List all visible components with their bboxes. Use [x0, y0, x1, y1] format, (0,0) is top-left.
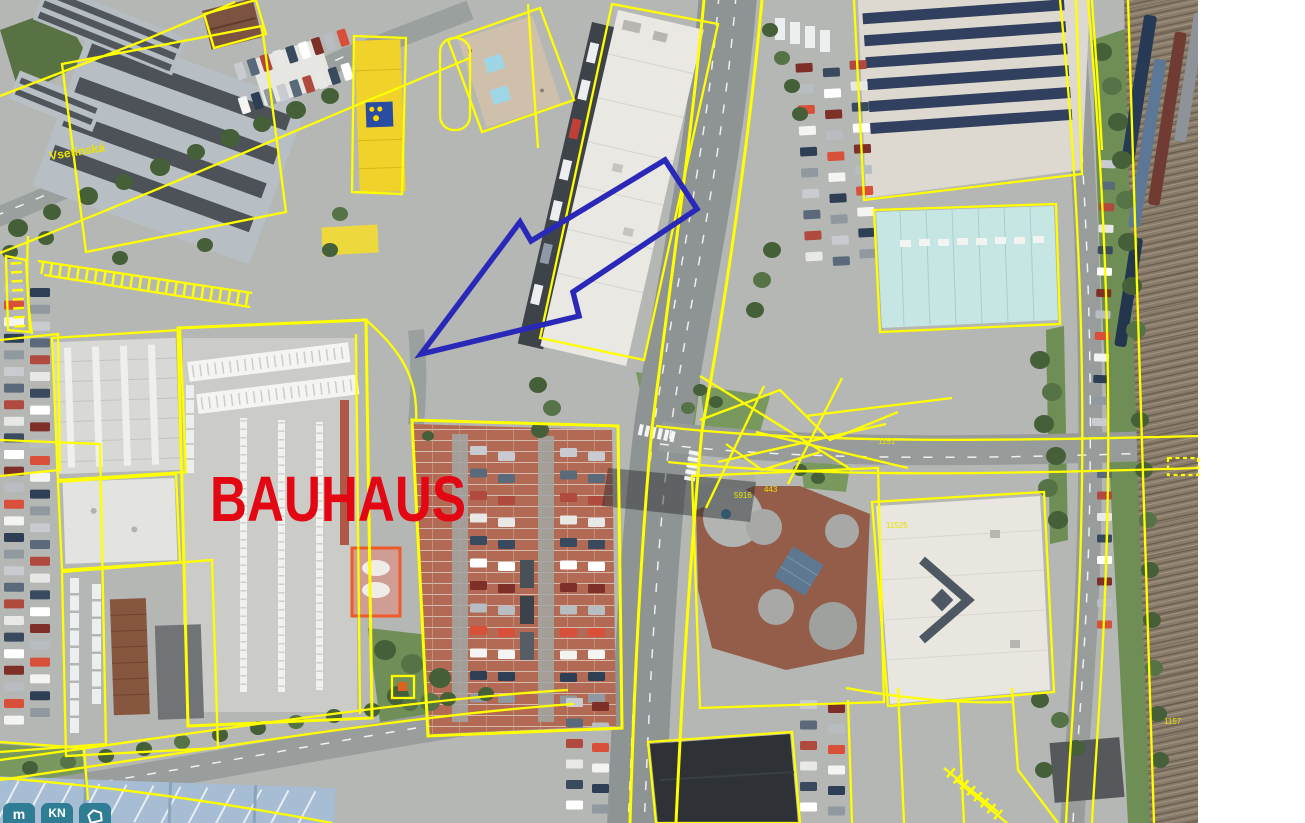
- car: [1097, 492, 1112, 500]
- car: [804, 231, 821, 241]
- car: [588, 628, 605, 637]
- car: [470, 649, 487, 658]
- car: [4, 450, 24, 459]
- car: [859, 249, 876, 259]
- car: [4, 417, 24, 426]
- car: [30, 540, 50, 549]
- car: [828, 725, 845, 734]
- car: [592, 702, 609, 711]
- car: [828, 786, 845, 795]
- car: [592, 784, 609, 793]
- car: [4, 550, 24, 559]
- car: [828, 704, 845, 713]
- car: [30, 658, 50, 667]
- car: [560, 471, 577, 480]
- imagery-edge-blank: [1198, 0, 1305, 823]
- car: [800, 741, 817, 750]
- car: [829, 193, 846, 203]
- parcel-number: 5916: [734, 491, 752, 500]
- car: [588, 540, 605, 549]
- car: [30, 641, 50, 650]
- car: [30, 624, 50, 633]
- parcel-number: 11525: [886, 521, 908, 530]
- car: [498, 672, 515, 681]
- car: [30, 607, 50, 616]
- car: [799, 126, 816, 136]
- car: [30, 557, 50, 566]
- car: [1095, 310, 1110, 319]
- car: [825, 109, 842, 119]
- car: [560, 561, 577, 570]
- car: [4, 350, 24, 359]
- car: [1092, 418, 1107, 427]
- car: [592, 743, 609, 752]
- car: [4, 682, 24, 691]
- car: [4, 616, 24, 625]
- car: [498, 628, 515, 637]
- car: [800, 803, 817, 812]
- car: [4, 516, 24, 525]
- roof-logo: [366, 102, 394, 128]
- car: [588, 672, 605, 681]
- car: [30, 355, 50, 364]
- highlighted-mini-parcel: [398, 682, 407, 691]
- car: [588, 694, 605, 703]
- car: [30, 523, 50, 532]
- car: [498, 540, 515, 549]
- car: [30, 456, 50, 465]
- car: [858, 228, 875, 238]
- car: [560, 628, 577, 637]
- car: [30, 422, 50, 431]
- map-toolbar: m KN: [3, 803, 111, 823]
- car: [498, 606, 515, 615]
- car: [560, 448, 577, 457]
- car: [566, 698, 583, 707]
- parcel-number: 1157: [1164, 717, 1182, 726]
- car: [827, 151, 844, 161]
- car: [801, 168, 818, 178]
- draw-polygon-button[interactable]: [79, 803, 111, 823]
- car: [470, 671, 487, 680]
- car: [566, 739, 583, 748]
- car: [1097, 556, 1112, 564]
- car: [828, 172, 845, 182]
- car: [1096, 289, 1111, 298]
- car: [800, 762, 817, 771]
- car: [588, 474, 605, 483]
- car: [470, 581, 487, 590]
- teal-building: [876, 206, 1058, 328]
- polygon-icon: [85, 806, 105, 823]
- car: [498, 496, 515, 505]
- solar-building: [858, 0, 1090, 198]
- car: [592, 805, 609, 814]
- car: [30, 473, 50, 482]
- car: [30, 406, 50, 415]
- car: [830, 214, 847, 224]
- measure-button[interactable]: m: [3, 803, 35, 823]
- car: [498, 562, 515, 571]
- car: [566, 760, 583, 769]
- car: [588, 562, 605, 571]
- car: [470, 559, 487, 568]
- car: [566, 780, 583, 789]
- car: [1097, 513, 1112, 521]
- car: [795, 63, 812, 73]
- car: [826, 130, 843, 140]
- parcel-number: 443: [764, 485, 778, 494]
- car: [30, 305, 50, 314]
- car: [1092, 396, 1107, 405]
- car: [4, 633, 24, 642]
- car: [1097, 535, 1112, 543]
- car: [857, 207, 874, 217]
- car: [828, 766, 845, 775]
- car: [30, 372, 50, 381]
- car: [592, 764, 609, 773]
- car: [588, 650, 605, 659]
- car: [498, 518, 515, 527]
- car: [4, 483, 24, 492]
- car: [470, 446, 487, 455]
- car: [4, 716, 24, 725]
- car: [560, 583, 577, 592]
- car: [470, 469, 487, 478]
- car: [828, 807, 845, 816]
- car: [470, 536, 487, 545]
- car: [498, 650, 515, 659]
- car: [470, 491, 487, 500]
- car: [30, 490, 50, 499]
- car: [588, 518, 605, 527]
- car: [4, 400, 24, 409]
- car: [498, 474, 515, 483]
- car: [470, 604, 487, 613]
- car: [4, 699, 24, 708]
- car: [833, 256, 850, 266]
- car: [800, 721, 817, 730]
- car: [30, 288, 50, 297]
- car: [588, 584, 605, 593]
- car: [4, 367, 24, 376]
- car: [30, 506, 50, 515]
- left-factory: [52, 338, 184, 564]
- car: [498, 452, 515, 461]
- car: [4, 666, 24, 675]
- car: [832, 235, 849, 245]
- cadastre-button[interactable]: KN: [41, 803, 73, 823]
- car: [30, 338, 50, 347]
- car: [30, 574, 50, 583]
- car: [4, 566, 24, 575]
- car: [470, 514, 487, 523]
- car: [4, 384, 24, 393]
- map-application: BAUHAUS Vsetínská 1151 11525 1157 5916 4…: [0, 0, 1305, 823]
- car: [560, 606, 577, 615]
- car: [30, 691, 50, 700]
- car: [823, 67, 840, 77]
- car: [1098, 224, 1113, 233]
- parcel-number: 1151: [878, 437, 896, 446]
- car: [560, 651, 577, 660]
- car: [560, 673, 577, 682]
- car: [824, 88, 841, 98]
- car: [470, 626, 487, 635]
- car: [30, 674, 50, 683]
- map-canvas[interactable]: BAUHAUS Vsetínská 1151 11525 1157 5916 4…: [0, 0, 1305, 823]
- car: [560, 516, 577, 525]
- car: [4, 500, 24, 509]
- car: [30, 322, 50, 331]
- car: [1093, 375, 1108, 384]
- car: [4, 599, 24, 608]
- yellow-roof-building: [354, 39, 405, 193]
- car: [805, 252, 822, 262]
- car: [588, 452, 605, 461]
- car: [30, 590, 50, 599]
- car: [588, 606, 605, 615]
- car: [800, 782, 817, 791]
- car: [828, 745, 845, 754]
- car: [566, 801, 583, 810]
- car: [803, 210, 820, 220]
- car: [566, 719, 583, 728]
- dark-building: [650, 734, 798, 823]
- car: [30, 708, 50, 717]
- car: [560, 538, 577, 547]
- car: [800, 147, 817, 157]
- car: [4, 649, 24, 658]
- car: [560, 493, 577, 502]
- car: [4, 533, 24, 542]
- car: [802, 189, 819, 199]
- store-label: BAUHAUS: [210, 463, 466, 535]
- bottom-right-building: [1050, 737, 1125, 803]
- car: [498, 584, 515, 593]
- car: [30, 389, 50, 398]
- car: [4, 583, 24, 592]
